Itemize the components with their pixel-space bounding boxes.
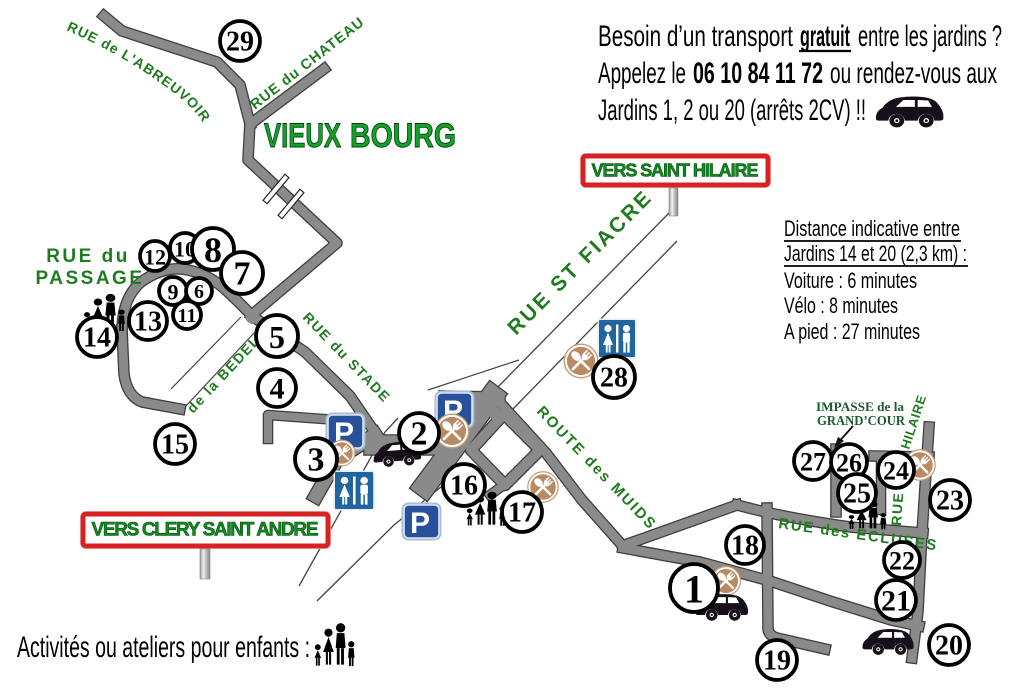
svg-text:20: 20 <box>935 631 963 662</box>
svg-text:gratuit: gratuit <box>800 20 850 53</box>
svg-text:25: 25 <box>843 479 871 510</box>
svg-text:1: 1 <box>684 567 704 612</box>
svg-text:14: 14 <box>83 323 111 354</box>
svg-text:IMPASSE de la: IMPASSE de la <box>816 399 905 414</box>
svg-text:Vélo : 8 minutes: Vélo : 8 minutes <box>784 293 898 318</box>
svg-text:5: 5 <box>269 319 285 355</box>
svg-text:9: 9 <box>168 280 179 305</box>
svg-text:Jardins 1, 2 ou 20 (arrêts 2CV: Jardins 1, 2 ou 20 (arrêts 2CV) !! <box>598 94 866 127</box>
svg-text:Appelez le: Appelez le <box>598 57 686 90</box>
svg-text:06 10 84 11 72: 06 10 84 11 72 <box>693 57 823 90</box>
svg-text:22: 22 <box>889 547 915 576</box>
svg-text:A pied : 27 minutes: A pied : 27 minutes <box>784 319 920 344</box>
svg-text:Distance indicative entre: Distance indicative entre <box>784 216 960 241</box>
svg-text:Jardins 14 et 20 (2,3 km) :: Jardins 14 et 20 (2,3 km) : <box>784 241 967 266</box>
svg-text:VERS SAINT HILAIRE: VERS SAINT HILAIRE <box>592 161 760 181</box>
svg-text:29: 29 <box>226 27 254 58</box>
svg-text:13: 13 <box>134 307 162 338</box>
svg-text:23: 23 <box>936 486 964 517</box>
svg-text:entre les jardins ?: entre les jardins ? <box>858 20 1002 53</box>
svg-text:Activités ou ateliers pour enf: Activités ou ateliers pour enfants : <box>17 631 310 664</box>
svg-text:12: 12 <box>144 245 166 270</box>
svg-text:BOURG: BOURG <box>350 117 456 155</box>
svg-text:VERS CLERY SAINT ANDRE: VERS CLERY SAINT ANDRE <box>92 520 320 541</box>
svg-text:ou rendez-vous aux: ou rendez-vous aux <box>830 57 997 90</box>
svg-text:VIEUX: VIEUX <box>264 117 341 155</box>
svg-text:18: 18 <box>731 531 759 562</box>
svg-text:Voiture : 6 minutes: Voiture : 6 minutes <box>784 268 917 293</box>
svg-text:21: 21 <box>881 585 911 618</box>
svg-text:RUE du: RUE du <box>46 246 130 267</box>
svg-text:15: 15 <box>161 430 189 461</box>
svg-text:GRAND’COUR: GRAND’COUR <box>817 413 905 428</box>
svg-text:2: 2 <box>411 416 428 453</box>
svg-text:17: 17 <box>508 498 536 529</box>
svg-text:19: 19 <box>763 646 791 677</box>
svg-text:16: 16 <box>450 471 478 502</box>
svg-text:28: 28 <box>600 363 628 394</box>
svg-text:11: 11 <box>178 305 197 327</box>
svg-text:RUE: RUE <box>888 491 906 526</box>
svg-text:24: 24 <box>883 457 909 486</box>
svg-text:8: 8 <box>204 230 222 270</box>
svg-text:27: 27 <box>800 448 826 477</box>
svg-text:3: 3 <box>308 442 325 479</box>
svg-text:PASSAGE: PASSAGE <box>35 268 144 289</box>
svg-text:4: 4 <box>270 373 285 406</box>
svg-text:Besoin d’un transport: Besoin d’un transport <box>598 20 793 53</box>
svg-text:7: 7 <box>234 256 251 293</box>
svg-text:6: 6 <box>194 281 204 303</box>
